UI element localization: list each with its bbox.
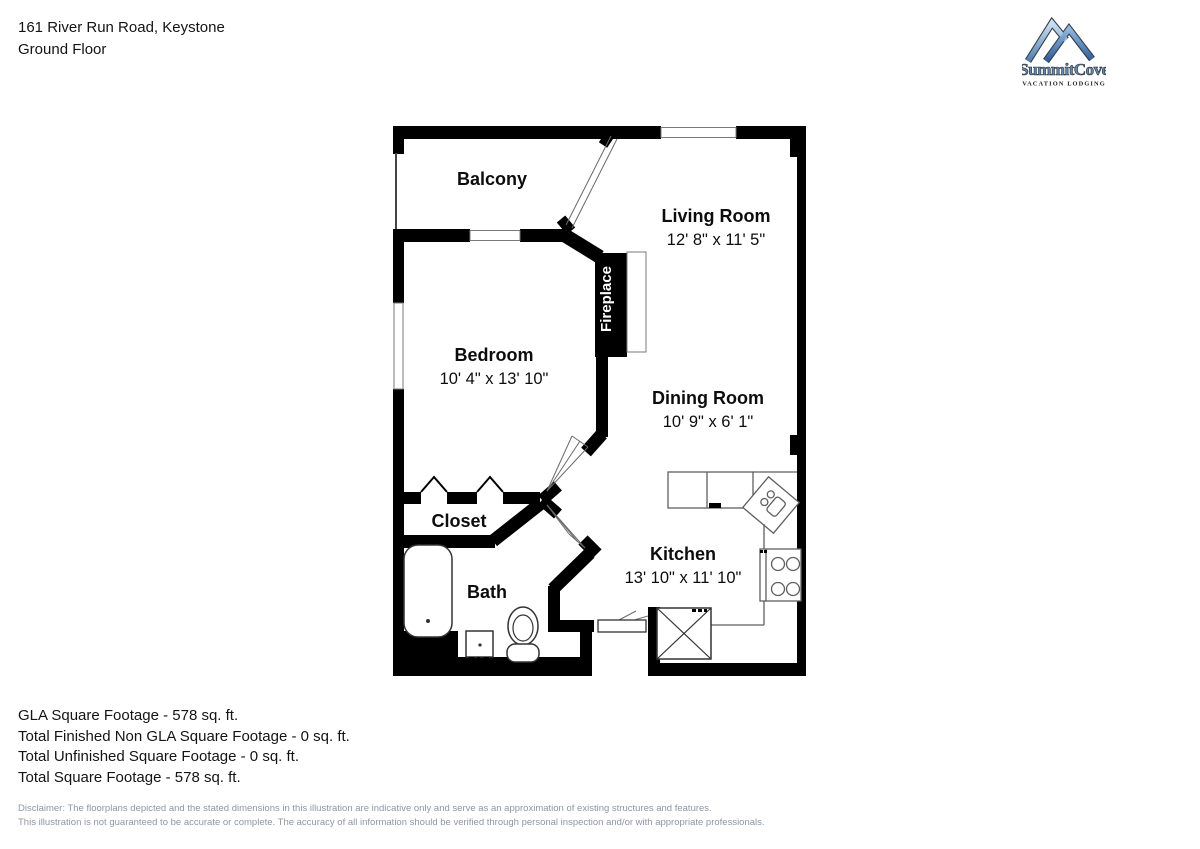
room-label-bath: Bath — [467, 582, 507, 602]
toilet-icon — [507, 607, 539, 662]
plan-header: 161 River Run Road, Keystone Ground Floo… — [18, 17, 225, 60]
floorplan-page: { "header": { "address_line": "161 River… — [0, 0, 1200, 849]
fireplace-hearth — [627, 252, 646, 352]
unfinished-sqft-line: Total Unfinished Square Footage - 0 sq. … — [18, 747, 350, 768]
bathtub-icon — [404, 545, 452, 637]
non-gla-sqft-line: Total Finished Non GLA Square Footage - … — [18, 727, 350, 748]
refrigerator-icon — [657, 608, 711, 659]
bedroom-window — [394, 303, 403, 389]
kitchen-fixtures — [657, 472, 801, 659]
logo-tagline-text: VACATION LODGING — [1022, 81, 1106, 88]
room-dims-kitchen: 13' 10" x 11' 10" — [625, 569, 742, 587]
balcony-window — [470, 231, 520, 241]
kitchen-counter — [668, 472, 753, 508]
disclaimer-line-2: This illustration is not guaranteed to b… — [18, 816, 765, 830]
floor-plan: Balcony Living Room 12' 8" x 11' 5" Bedr… — [380, 112, 820, 690]
room-label-living: Living Room — [662, 206, 771, 226]
summitcove-logo: SummitCove VACATION LODGING — [1022, 12, 1106, 88]
room-dims-bedroom: 10' 4" x 13' 10" — [440, 370, 549, 388]
disclaimer: Disclaimer: The floorplans depicted and … — [18, 802, 765, 830]
mountain-icon — [1028, 23, 1092, 61]
living-room-window — [661, 128, 736, 138]
bath-sink-icon — [466, 631, 493, 663]
room-label-bedroom: Bedroom — [454, 345, 533, 365]
stove-icon — [760, 549, 801, 601]
address-line: 161 River Run Road, Keystone — [18, 17, 225, 39]
windows — [394, 128, 736, 390]
room-label-closet: Closet — [431, 511, 486, 531]
total-sqft-line: Total Square Footage - 578 sq. ft. — [18, 768, 350, 789]
square-footage-summary: GLA Square Footage - 578 sq. ft. Total F… — [18, 706, 350, 788]
room-label-balcony: Balcony — [457, 169, 527, 189]
entry-door — [598, 611, 648, 632]
room-label-dining: Dining Room — [652, 388, 764, 408]
room-label-fireplace: Fireplace — [598, 266, 615, 332]
bath-door — [547, 505, 585, 548]
logo-brand-text: SummitCove — [1022, 60, 1106, 79]
disclaimer-line-1: Disclaimer: The floorplans depicted and … — [18, 802, 765, 816]
room-label-kitchen: Kitchen — [650, 544, 716, 564]
room-dims-dining: 10' 9" x 6' 1" — [663, 413, 754, 431]
gla-sqft-line: GLA Square Footage - 578 sq. ft. — [18, 706, 350, 727]
sliding-door — [566, 136, 617, 228]
floor-line: Ground Floor — [18, 39, 225, 61]
closet-bifold-doors — [421, 477, 503, 492]
room-dims-living: 12' 8" x 11' 5" — [667, 231, 766, 249]
